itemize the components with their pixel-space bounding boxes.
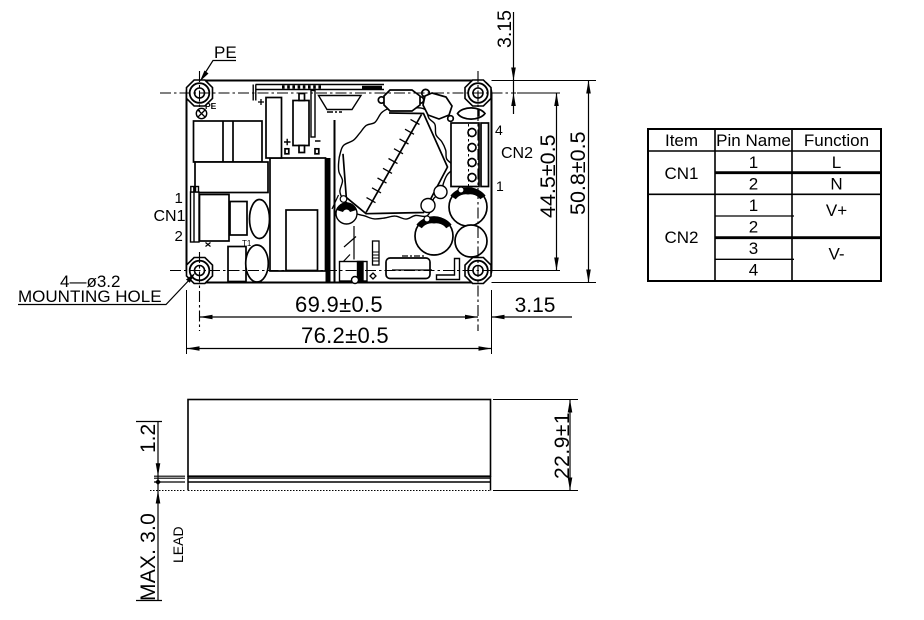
- svg-text:N: N: [830, 175, 842, 194]
- svg-text:4: 4: [749, 261, 758, 280]
- svg-text:CN2: CN2: [501, 145, 533, 162]
- svg-text:V-: V-: [828, 245, 844, 264]
- svg-text:1: 1: [496, 178, 504, 194]
- svg-text:Item: Item: [665, 131, 698, 150]
- svg-text:CN1: CN1: [664, 164, 698, 183]
- svg-text:MAX. 3.0: MAX. 3.0: [137, 513, 160, 601]
- svg-text:2: 2: [749, 175, 758, 194]
- svg-text:MOUNTING HOLE: MOUNTING HOLE: [18, 287, 162, 306]
- svg-text:3.15: 3.15: [494, 10, 516, 48]
- svg-text:1: 1: [749, 196, 758, 215]
- svg-text:1.2: 1.2: [137, 424, 160, 453]
- svg-text:3.15: 3.15: [515, 294, 556, 317]
- svg-text:76.2±0.5: 76.2±0.5: [301, 323, 389, 348]
- svg-text:1: 1: [175, 190, 183, 207]
- svg-text:2: 2: [175, 228, 183, 245]
- svg-text:69.9±0.5: 69.9±0.5: [295, 292, 383, 317]
- svg-text:PE: PE: [214, 43, 237, 62]
- svg-text:1: 1: [749, 153, 758, 172]
- svg-text:T1: T1: [242, 239, 252, 248]
- svg-text:50.8±0.5: 50.8±0.5: [566, 131, 590, 215]
- svg-text:CN2: CN2: [664, 228, 698, 247]
- svg-text:Function: Function: [804, 131, 869, 150]
- svg-text:22.9±1: 22.9±1: [551, 412, 574, 479]
- svg-text:Pin Name: Pin Name: [716, 131, 791, 150]
- svg-text:4: 4: [495, 122, 503, 138]
- svg-text:2: 2: [749, 218, 758, 237]
- svg-text:CN1: CN1: [154, 208, 186, 225]
- svg-text:3: 3: [749, 239, 758, 258]
- svg-text:LEAD: LEAD: [170, 526, 186, 563]
- svg-text:L: L: [832, 153, 841, 172]
- svg-text:44.5±0.5: 44.5±0.5: [536, 134, 560, 218]
- svg-text:V+: V+: [826, 201, 847, 220]
